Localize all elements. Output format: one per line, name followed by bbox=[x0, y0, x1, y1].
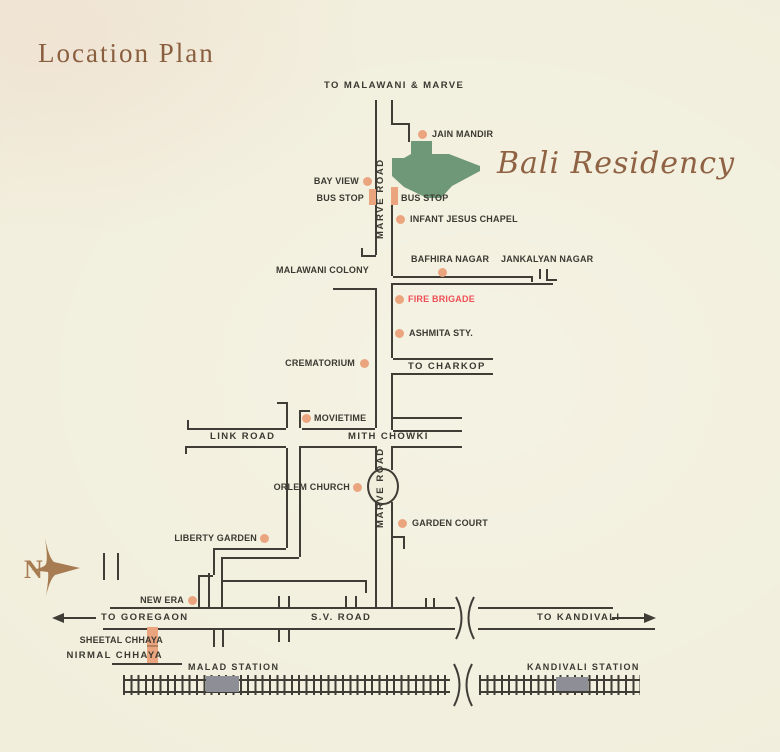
road-segment bbox=[221, 557, 299, 559]
road-segment bbox=[478, 607, 613, 609]
road-segment bbox=[198, 575, 200, 607]
label-mith-chowki: MITH CHOWKI bbox=[348, 431, 429, 442]
road-segment bbox=[288, 596, 290, 607]
compass-north-icon: N bbox=[22, 536, 102, 602]
road-segment bbox=[299, 410, 301, 428]
road-segment bbox=[299, 448, 301, 557]
marker-orlem-church bbox=[353, 483, 362, 492]
road-segment bbox=[213, 548, 286, 550]
road-segment bbox=[361, 255, 376, 257]
road-segment bbox=[539, 269, 541, 279]
label-jankalyan-nagar: JANKALYAN NAGAR bbox=[501, 254, 593, 265]
road-segment bbox=[278, 596, 280, 607]
bus-stop-marker-east bbox=[391, 187, 398, 205]
road-segment bbox=[393, 276, 531, 278]
label-malawani-colony: MALAWANI COLONY bbox=[259, 265, 369, 276]
label-infant-jesus-chapel: INFANT JESUS CHAPEL bbox=[410, 214, 518, 225]
marker-bay-view bbox=[363, 177, 372, 186]
road-segment bbox=[187, 428, 286, 430]
label-kandivali-station: KANDIVALI STATION bbox=[527, 662, 640, 673]
road-segment bbox=[185, 446, 187, 454]
road-segment bbox=[221, 580, 365, 582]
road-segment bbox=[365, 580, 367, 593]
road-segment bbox=[208, 573, 210, 607]
road-segment bbox=[391, 373, 393, 430]
road-segment bbox=[345, 596, 347, 607]
road-segment bbox=[393, 446, 462, 448]
road-segment bbox=[403, 536, 405, 549]
marker-new-era bbox=[188, 596, 197, 605]
label-to-malawani-marve: TO MALAWANI & MARVE bbox=[324, 80, 464, 91]
label-bus-stop-east: BUS STOP bbox=[401, 193, 448, 204]
road-segment bbox=[333, 288, 375, 290]
marker-garden-court bbox=[398, 519, 407, 528]
road-segment bbox=[299, 446, 375, 448]
road-segment bbox=[433, 598, 435, 607]
label-fire-brigade: FIRE BRIGADE bbox=[408, 294, 475, 305]
label-malad-station: MALAD STATION bbox=[188, 662, 279, 673]
road-segment bbox=[110, 607, 455, 609]
label-bafhira-nagar: BAFHIRA NAGAR bbox=[411, 254, 489, 265]
compass-n-label: N bbox=[24, 555, 43, 584]
marker-ashmita bbox=[395, 329, 404, 338]
road-segment bbox=[286, 402, 288, 428]
road-segment bbox=[391, 200, 393, 276]
road-segment bbox=[391, 283, 393, 358]
road-segment bbox=[425, 598, 427, 607]
label-garden-court: GARDEN COURT bbox=[412, 518, 488, 529]
marker-infant-jesus bbox=[396, 215, 405, 224]
label-new-era: NEW ERA bbox=[74, 595, 184, 606]
road-segment bbox=[391, 100, 393, 123]
road-segment bbox=[546, 279, 557, 281]
marker-crematorium bbox=[360, 359, 369, 368]
road-segment bbox=[221, 580, 223, 607]
road-segment bbox=[302, 428, 375, 430]
label-bus-stop-west: BUS STOP bbox=[254, 193, 364, 204]
location-plan-map: N Location Plan Bali Residency TO MALAWA… bbox=[0, 0, 780, 752]
railway-break-mark bbox=[446, 662, 480, 708]
road-segment bbox=[286, 448, 288, 548]
label-marve-road-lower: MARVE ROAD bbox=[375, 450, 391, 528]
road-segment bbox=[393, 373, 493, 375]
road-segment bbox=[478, 628, 655, 630]
road-segment bbox=[393, 283, 553, 285]
road-segment bbox=[117, 553, 119, 580]
malad-station-block bbox=[206, 676, 239, 692]
road-break-mark bbox=[449, 595, 481, 641]
road-segment bbox=[213, 628, 215, 647]
marker-jain-mandir bbox=[418, 130, 427, 139]
railway-rail bbox=[123, 691, 450, 693]
label-to-goregaon: TO GOREGAON bbox=[101, 612, 189, 623]
marker-bafhira-nagar bbox=[438, 268, 447, 277]
road-segment bbox=[198, 575, 213, 577]
road-segment bbox=[103, 553, 105, 580]
page-title: Location Plan bbox=[38, 38, 215, 69]
road-segment bbox=[355, 596, 357, 607]
label-sv-road: S.V. ROAD bbox=[311, 612, 371, 623]
road-segment bbox=[375, 288, 377, 428]
kandivali-station-block bbox=[556, 677, 588, 691]
label-crematorium: CREMATORIUM bbox=[245, 358, 355, 369]
road-segment bbox=[393, 417, 462, 419]
road-segment bbox=[531, 276, 533, 282]
label-jain-mandir: JAIN MANDIR bbox=[432, 129, 493, 140]
road-segment bbox=[185, 446, 286, 448]
road-segment bbox=[213, 548, 215, 575]
road-segment bbox=[288, 628, 290, 642]
road-segment bbox=[391, 446, 393, 470]
road-segment bbox=[112, 663, 182, 665]
label-liberty-garden: LIBERTY GARDEN bbox=[147, 533, 257, 544]
marker-fire-brigade bbox=[395, 295, 404, 304]
label-marve-road-upper: MARVE ROAD bbox=[375, 157, 391, 241]
road-segment bbox=[187, 420, 189, 428]
label-to-charkop: TO CHARKOP bbox=[408, 361, 486, 372]
label-link-road: LINK ROAD bbox=[210, 431, 275, 442]
label-bay-view: BAY VIEW bbox=[249, 176, 359, 187]
label-orlem-church: ORLEM CHURCH bbox=[240, 482, 350, 493]
label-nirmal-chhaya: NIRMAL CHHAYA bbox=[53, 650, 163, 661]
marker-movietime bbox=[302, 414, 311, 423]
label-ashmita-sty: ASHMITA STY. bbox=[409, 328, 473, 339]
road-segment bbox=[222, 628, 224, 647]
label-sheetal-chhaya: SHEETAL CHHAYA bbox=[53, 635, 163, 646]
railway-rail bbox=[123, 679, 450, 681]
road-segment bbox=[391, 502, 393, 607]
arrow-west-icon bbox=[52, 612, 96, 624]
road-segment bbox=[546, 269, 548, 279]
railway-rail bbox=[479, 691, 640, 693]
road-segment bbox=[393, 358, 493, 360]
road-segment bbox=[278, 628, 280, 642]
label-movietime: MOVIETIME bbox=[314, 413, 366, 424]
label-to-kandivali: TO KANDIVALI bbox=[537, 612, 620, 623]
marker-liberty-garden bbox=[260, 534, 269, 543]
road-segment bbox=[221, 557, 223, 580]
road-segment bbox=[299, 410, 310, 412]
project-name: Bali Residency bbox=[497, 146, 735, 181]
road-segment bbox=[277, 402, 286, 404]
